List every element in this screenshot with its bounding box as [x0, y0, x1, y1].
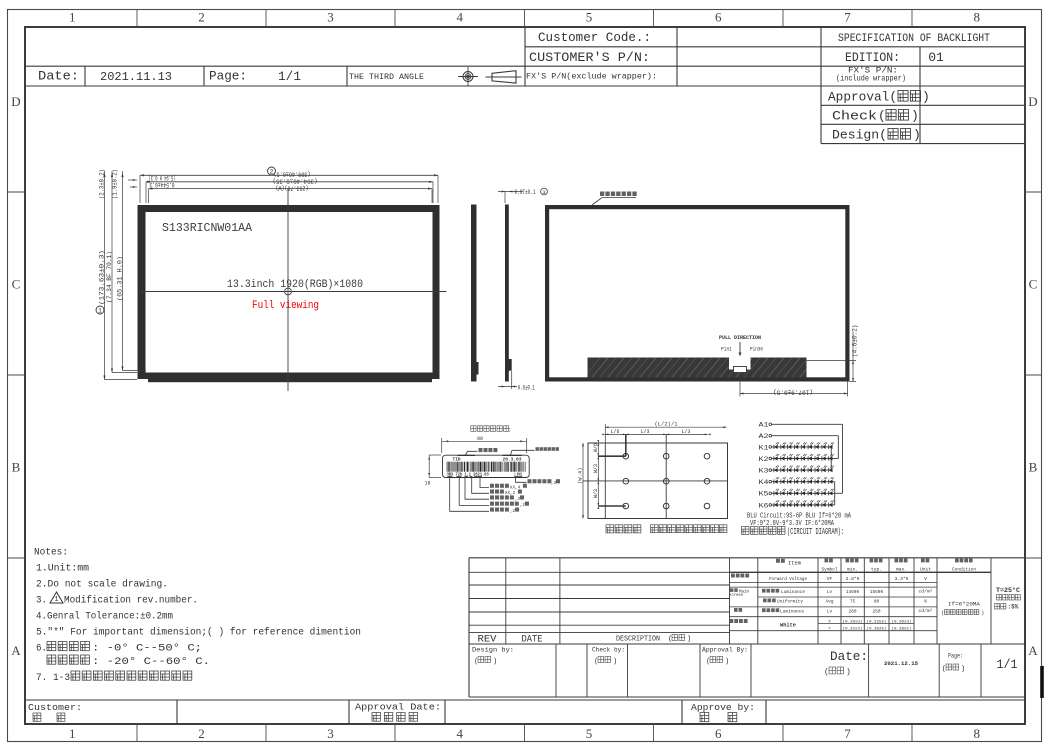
- svg-text:280: 280: [849, 609, 857, 614]
- svg-text:K3: K3: [759, 468, 770, 475]
- svg-text:,3: ,3: [551, 481, 557, 486]
- svg-text:Lv: Lv: [827, 609, 833, 614]
- svg-text:(1.9±0.2): (1.9±0.2): [112, 169, 119, 199]
- svg-text:typ.: typ.: [871, 567, 882, 573]
- svg-text:L/3: L/3: [681, 429, 690, 435]
- svg-text:Pin30: Pin30: [750, 346, 763, 353]
- svg-text:(0.3825): (0.3825): [867, 626, 887, 631]
- svg-text:5."*" For important dimension;: 5."*" For important dimension;( ) for re…: [36, 627, 361, 639]
- svg-text:TID: TID: [453, 457, 461, 463]
- svg-text:screen: screen: [729, 594, 743, 598]
- svg-text:7: 7: [844, 10, 851, 25]
- svg-text:Approval By:: Approval By:: [702, 647, 748, 654]
- svg-text:Check by:: Check by:: [592, 647, 625, 654]
- svg-text:Pin1: Pin1: [721, 346, 733, 353]
- svg-text:(: (: [942, 666, 946, 674]
- svg-text:): ): [687, 636, 691, 644]
- svg-text:(W.4): (W.4): [577, 467, 584, 484]
- svg-text:Approval(: Approval(: [828, 90, 897, 105]
- svg-text:SPECIFICATION OF BACKLIGHT: SPECIFICATION OF BACKLIGHT: [838, 33, 990, 45]
- svg-text:cd/m²: cd/m²: [919, 608, 933, 614]
- svg-text:B: B: [12, 460, 21, 475]
- svg-text:Customer Code.:: Customer Code.:: [538, 30, 651, 45]
- svg-text::5%: :5%: [1008, 604, 1019, 611]
- svg-text:Customer:: Customer:: [28, 702, 82, 713]
- svg-text:2021.11.13: 2021.11.13: [100, 70, 172, 84]
- svg-text:A: A: [1028, 643, 1038, 658]
- svg-text:Lv: Lv: [827, 590, 833, 595]
- svg-text:Approve by:: Approve by:: [691, 702, 755, 713]
- svg-text:: -20° C--60° C.: : -20° C--60° C.: [92, 656, 210, 668]
- svg-text:): ): [961, 666, 965, 674]
- svg-text:C: C: [1029, 277, 1038, 292]
- svg-text:,3: ,3: [515, 497, 521, 502]
- svg-text:V: V: [924, 576, 927, 582]
- svg-text:13.3inch 1920(RGB)×1080: 13.3inch 1920(RGB)×1080: [227, 279, 363, 291]
- svg-text:min.: min.: [847, 567, 858, 573]
- svg-text:THE THIRD ANGLE: THE THIRD ANGLE: [349, 72, 424, 82]
- svg-text:Approval Date:: Approval Date:: [355, 702, 441, 713]
- svg-text:DESCRIPTION: DESCRIPTION: [616, 636, 660, 644]
- svg-text:XX,2: XX,2: [505, 491, 516, 496]
- svg-text:01: 01: [928, 50, 944, 65]
- svg-text:(L/2)/1: (L/2)/1: [654, 421, 678, 428]
- svg-text:,2: ,2: [520, 503, 526, 508]
- svg-text:Design by:: Design by:: [472, 647, 514, 654]
- svg-text:DATE: DATE: [522, 635, 543, 646]
- svg-text:1: 1: [54, 596, 58, 604]
- svg-text:A1: A1: [759, 422, 770, 429]
- svg-text:(0.38ds): (0.38ds): [892, 626, 912, 631]
- svg-text:2: 2: [198, 10, 205, 25]
- svg-text:If=6*20MA: If=6*20MA: [948, 601, 981, 608]
- svg-text:3: 3: [327, 10, 334, 25]
- svg-text:Page:: Page:: [209, 69, 247, 84]
- svg-text:(0.3255): (0.3255): [867, 619, 887, 624]
- svg-text:%: %: [924, 600, 927, 605]
- svg-text:4: 4: [457, 726, 464, 741]
- svg-text:Modification rev.number.: Modification rev.number.: [64, 595, 198, 607]
- svg-text:VF: VF: [827, 576, 833, 582]
- svg-text:(: (: [878, 109, 886, 124]
- svg-text:W/3: W/3: [593, 464, 599, 473]
- svg-text:8: 8: [974, 726, 981, 741]
- svg-text:Uniformity: Uniformity: [777, 600, 803, 605]
- svg-text:(0.36sd): (0.36sd): [892, 619, 912, 624]
- svg-text:18: 18: [425, 481, 431, 487]
- svg-text:): ): [613, 658, 617, 666]
- svg-text:(: (: [941, 610, 944, 617]
- svg-text:80: 80: [874, 600, 880, 605]
- svg-text:7. 1-3: 7. 1-3: [36, 672, 70, 684]
- svg-text:(304.40±0.35): (304.40±0.35): [273, 178, 318, 185]
- svg-text:4.Genral Tolerance:±0.2mm: 4.Genral Tolerance:±0.2mm: [36, 611, 173, 623]
- svg-text:4: 4: [457, 10, 464, 25]
- svg-text:W/6: W/6: [593, 443, 599, 452]
- svg-text:D: D: [11, 94, 20, 109]
- svg-text:White: White: [780, 623, 796, 629]
- svg-text:Luminance: Luminance: [780, 609, 804, 614]
- svg-text:(5.94 H 0.3): (5.94 H 0.3): [149, 174, 176, 181]
- svg-text:(65.31 H.0): (65.31 H.0): [117, 256, 124, 301]
- svg-text:2.8*9: 2.8*9: [846, 576, 860, 582]
- svg-text:1.Unit:mm: 1.Unit:mm: [36, 563, 89, 575]
- svg-text:(2.3±0.2): (2.3±0.2): [99, 169, 106, 199]
- svg-text:): ): [913, 128, 921, 143]
- svg-text:Luminance: Luminance: [781, 590, 805, 595]
- svg-text:): ): [981, 610, 984, 617]
- svg-text:5: 5: [586, 10, 593, 25]
- svg-text:K6: K6: [759, 502, 770, 509]
- svg-text:): ): [922, 90, 930, 105]
- svg-text:): ): [725, 658, 729, 666]
- svg-text::: :: [508, 427, 512, 434]
- svg-text:EDITION:: EDITION:: [845, 51, 900, 65]
- svg-text:2: 2: [198, 726, 205, 741]
- svg-text:75: 75: [850, 600, 856, 605]
- svg-text:1: 1: [69, 726, 76, 741]
- svg-text:K2: K2: [759, 456, 770, 463]
- svg-text:L/3: L/3: [640, 429, 649, 435]
- svg-text:3.3*9: 3.3*9: [895, 576, 909, 582]
- svg-text:FX'S P/N(exclude wrapper):: FX'S P/N(exclude wrapper):: [526, 72, 657, 82]
- svg-text:Item: Item: [788, 561, 801, 567]
- svg-text:cd/m²: cd/m²: [919, 588, 933, 594]
- svg-text:6.: 6.: [36, 643, 47, 655]
- svg-text:1/1: 1/1: [278, 70, 301, 84]
- svg-text:L/6: L/6: [610, 429, 619, 435]
- svg-text:K1: K1: [759, 444, 770, 451]
- svg-text:Date:: Date:: [830, 649, 868, 664]
- svg-text:Symbol: Symbol: [822, 567, 838, 573]
- svg-text:Forward Voltage: Forward Voltage: [769, 576, 807, 582]
- svg-text:W/3: W/3: [593, 489, 599, 498]
- svg-text:(0.32sd): (0.32sd): [843, 626, 863, 631]
- svg-text:(0.28sd): (0.28sd): [843, 619, 863, 624]
- svg-text:CUSTOMER'S P/N:: CUSTOMER'S P/N:: [529, 50, 650, 65]
- svg-text:15500: 15500: [870, 590, 884, 595]
- svg-text:A2: A2: [759, 433, 770, 440]
- svg-text:(: (: [474, 658, 478, 666]
- svg-text:0.544±0.3: 0.544±0.3: [149, 181, 174, 188]
- svg-text:6: 6: [715, 726, 722, 741]
- svg-text:(7.34 BF 70.1): (7.34 BF 70.1): [106, 251, 113, 303]
- svg-text:3.: 3.: [36, 595, 47, 607]
- svg-text:(: (: [824, 668, 829, 677]
- svg-text:2.Do not scale drawing.: 2.Do not scale drawing.: [36, 579, 168, 591]
- svg-text:T=25°C: T=25°C: [996, 587, 1020, 594]
- svg-text:5: 5: [586, 726, 593, 741]
- svg-text:(: (: [706, 658, 710, 666]
- svg-text:B: B: [1029, 460, 1038, 475]
- svg-text:250: 250: [873, 609, 881, 614]
- svg-text:(: (: [668, 636, 672, 644]
- svg-text:(293.76)(W): (293.76)(W): [276, 184, 309, 191]
- svg-text:1: 1: [69, 10, 76, 25]
- svg-text:(309.46±0.5): (309.46±0.5): [274, 171, 311, 178]
- svg-text:): ): [493, 658, 497, 666]
- svg-text:14500: 14500: [846, 590, 860, 595]
- svg-text:Avg: Avg: [826, 600, 834, 605]
- svg-text:REV: REV: [478, 635, 497, 646]
- svg-text:: -0° C--50° C;: : -0° C--50° C;: [92, 643, 202, 655]
- svg-text:0.6±0.1: 0.6±0.1: [518, 385, 535, 392]
- svg-text:2: 2: [270, 169, 274, 176]
- svg-text:6: 6: [715, 10, 722, 25]
- svg-text:D: D: [1028, 94, 1037, 109]
- svg-text:0.9T±0.1: 0.9T±0.1: [515, 189, 536, 196]
- svg-text:Notes:: Notes:: [34, 547, 68, 559]
- svg-text:8: 8: [974, 10, 981, 25]
- svg-text:(173.63±0.3): (173.63±0.3): [99, 250, 106, 305]
- svg-text:2021.12.15: 2021.12.15: [884, 660, 918, 667]
- svg-text:Page:: Page:: [948, 653, 963, 660]
- svg-text:(4.6±0.2): (4.6±0.2): [852, 325, 859, 357]
- svg-text:Date:: Date:: [38, 69, 79, 84]
- svg-text:Design(: Design(: [832, 128, 887, 143]
- svg-text:A: A: [11, 643, 21, 658]
- svg-text:(include wrapper): (include wrapper): [836, 75, 906, 84]
- svg-text:K4: K4: [759, 479, 770, 486]
- svg-text:PULL DIRECTION: PULL DIRECTION: [719, 334, 761, 341]
- svg-text:(CIRCUIT DIAGRAM):: (CIRCUIT DIAGRAM):: [787, 527, 844, 537]
- svg-text:1/1: 1/1: [997, 658, 1018, 672]
- svg-text:3: 3: [327, 726, 334, 741]
- svg-text:S133RICNW01AA: S133RICNW01AA: [162, 221, 253, 235]
- svg-text:Unit: Unit: [920, 567, 931, 573]
- svg-text:1: 1: [98, 308, 102, 315]
- svg-text:7: 7: [844, 726, 851, 741]
- svg-text:3: 3: [542, 189, 545, 196]
- svg-text:C: C: [12, 277, 21, 292]
- svg-text:Full viewing: Full viewing: [252, 300, 319, 312]
- svg-text:90: 90: [477, 436, 483, 442]
- svg-text:K5: K5: [759, 491, 770, 498]
- svg-text:max.: max.: [896, 568, 907, 573]
- svg-text:,2: ,2: [510, 509, 516, 514]
- svg-text:(107.9±0.5): (107.9±0.5): [773, 388, 813, 395]
- svg-text:Check: Check: [832, 109, 877, 124]
- svg-text:(: (: [594, 658, 598, 666]
- svg-text:Condition: Condition: [952, 567, 976, 573]
- svg-text:): ): [911, 109, 919, 124]
- svg-text:): ): [846, 668, 851, 677]
- svg-text:20.3.03: 20.3.03: [503, 457, 522, 463]
